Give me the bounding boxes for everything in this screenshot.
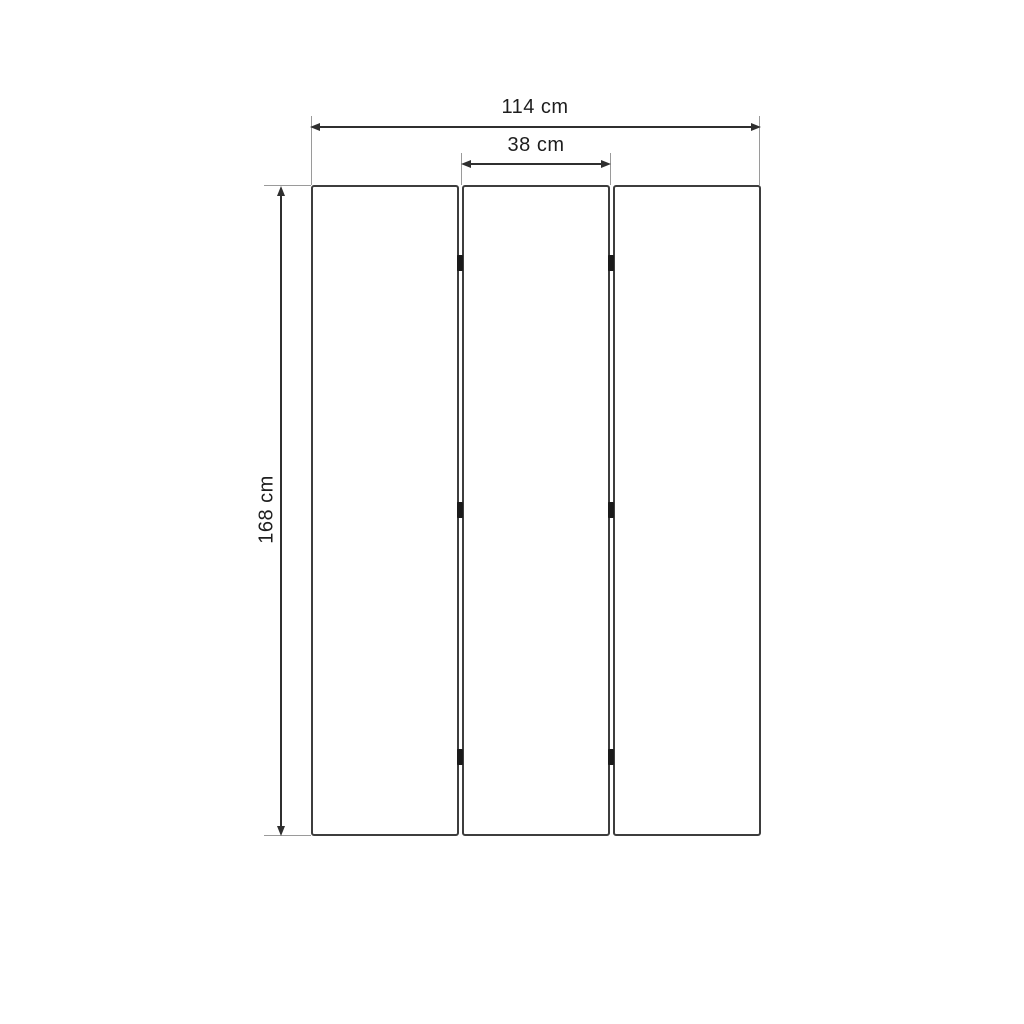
hinge-left-top (457, 255, 463, 271)
panel-center (462, 185, 610, 836)
hinge-left-middle (457, 502, 463, 518)
panel-right (613, 185, 761, 836)
arrowhead-height-top-icon (277, 186, 285, 196)
arrowhead-height-bottom-icon (277, 826, 285, 836)
arrowhead-width-left-icon (310, 123, 320, 131)
arrowhead-panel-right-icon (601, 160, 611, 168)
arrowhead-width-right-icon (751, 123, 761, 131)
extension-line-panel-left (461, 153, 462, 185)
panel-width-label: 38 cm (456, 134, 616, 157)
arrowhead-panel-left-icon (461, 160, 471, 168)
dimension-line-height (280, 193, 282, 829)
hinge-right-bottom (608, 749, 614, 765)
dimension-line-overall-width (318, 126, 753, 128)
dimension-line-panel-width (469, 163, 603, 165)
hinge-left-bottom (457, 749, 463, 765)
extension-line-height-bottom (264, 835, 311, 836)
height-label: 168 cm (256, 430, 279, 590)
dimension-drawing-canvas: 114 cm 38 cm 168 cm (0, 0, 1024, 1024)
hinge-right-middle (608, 502, 614, 518)
overall-width-label: 114 cm (455, 96, 615, 119)
panel-left (311, 185, 459, 836)
extension-line-height-top (264, 185, 311, 186)
hinge-right-top (608, 255, 614, 271)
extension-line-panel-right (610, 153, 611, 185)
